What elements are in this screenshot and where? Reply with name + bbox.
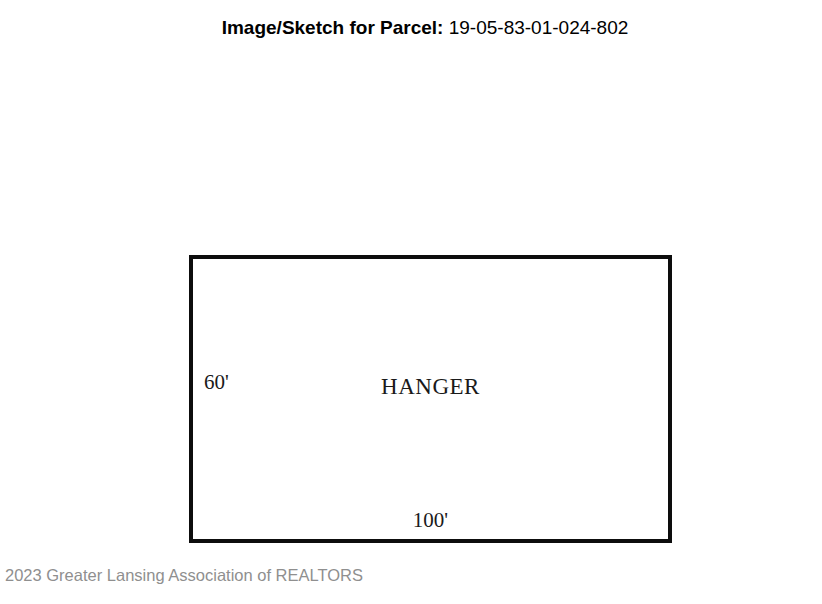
dimension-label-bottom: 100' <box>193 508 668 533</box>
copyright-text: 2023 Greater Lansing Association of REAL… <box>5 566 363 585</box>
parcel-sketch-page: Image/Sketch for Parcel: 19-05-83-01-024… <box>0 0 822 604</box>
parcel-number: 19-05-83-01-024-802 <box>449 17 629 38</box>
page-title: Image/Sketch for Parcel: 19-05-83-01-024… <box>0 16 822 40</box>
page-title-label: Image/Sketch for Parcel: <box>222 17 444 38</box>
building-label: HANGER <box>193 374 668 400</box>
building-outline-rectangle: 60' HANGER 100' <box>189 255 672 543</box>
